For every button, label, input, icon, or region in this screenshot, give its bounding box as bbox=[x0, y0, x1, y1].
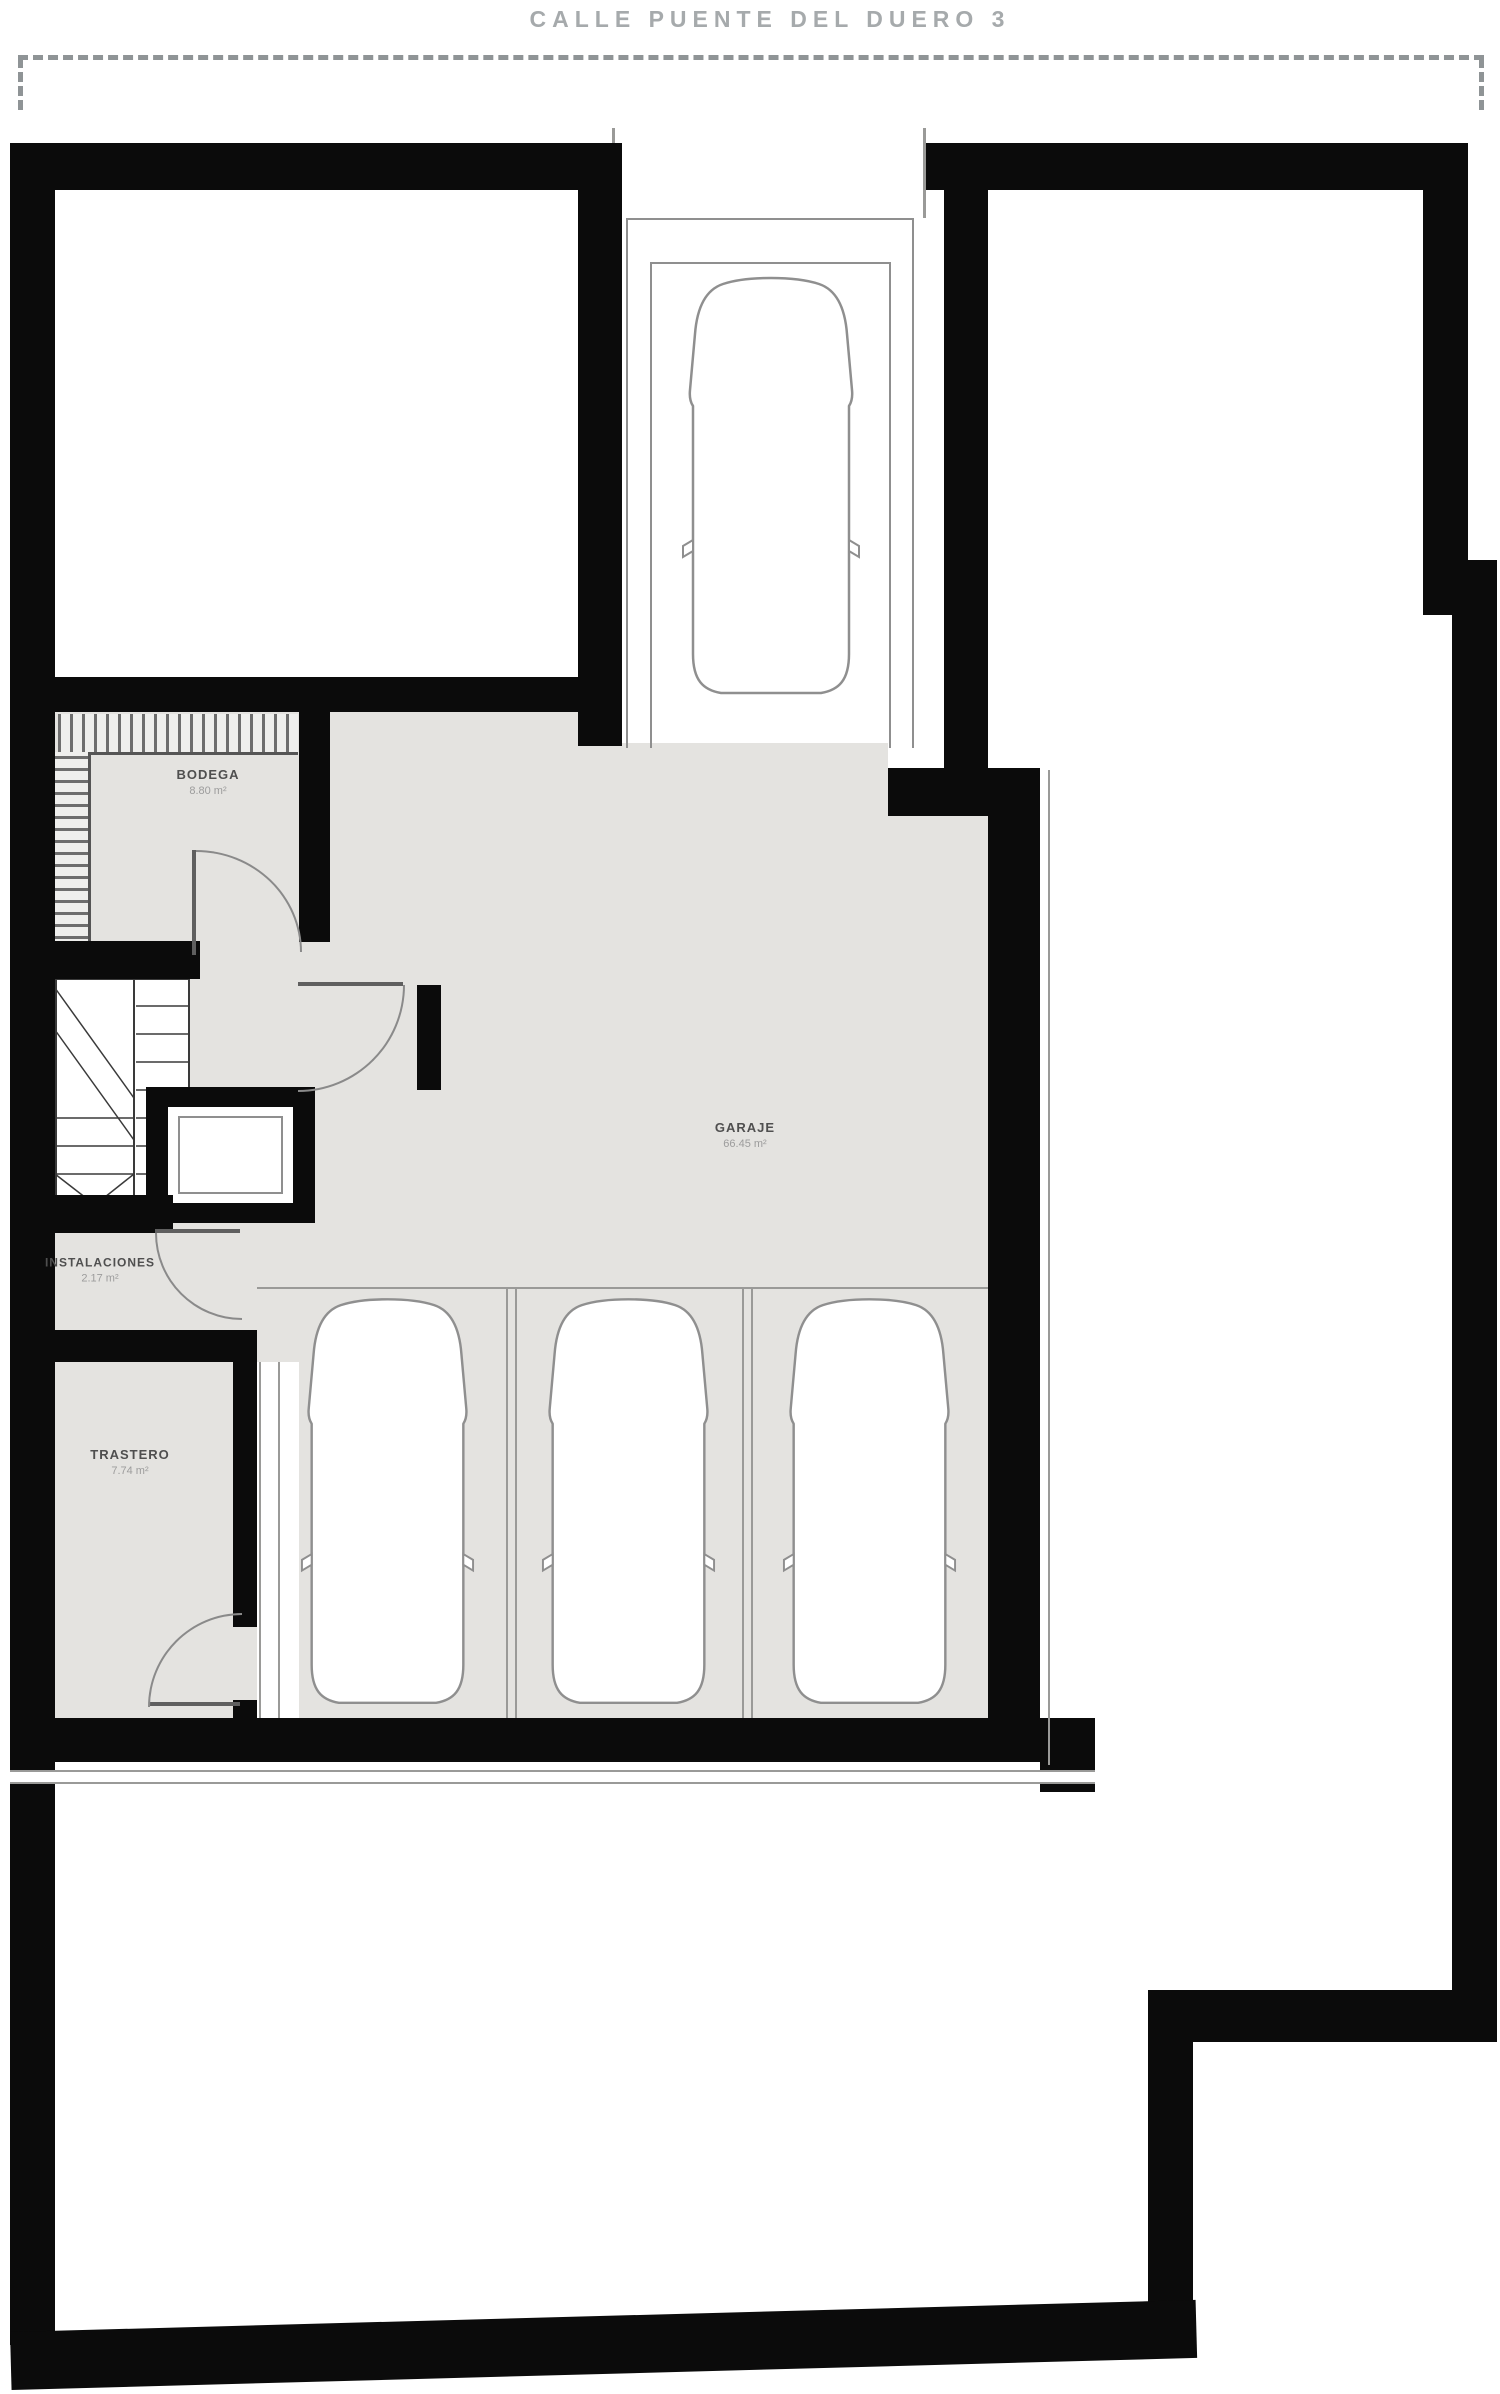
parking-bay-top-line bbox=[257, 1287, 988, 1289]
plot-boundary-dashed-line bbox=[18, 55, 1484, 60]
wall-ramp-right bbox=[944, 143, 988, 816]
wall-right-upper bbox=[1423, 143, 1468, 615]
wall-notch-vertical bbox=[1148, 1990, 1193, 2345]
car-on-ramp bbox=[680, 272, 862, 702]
bay-divider-1b bbox=[515, 1287, 517, 1718]
bay-divider-2b bbox=[751, 1287, 753, 1718]
wall-trastero-top bbox=[10, 1330, 257, 1362]
wall-bottom-slanted bbox=[10, 2300, 1197, 2390]
trastero-partition-line-a bbox=[259, 1362, 261, 1718]
plot-boundary-dash-right bbox=[1479, 58, 1484, 110]
street-title: CALLE PUENTE DEL DUERO 3 bbox=[530, 6, 1011, 33]
parked-car-1 bbox=[300, 1290, 475, 1715]
trastero-partition-line-b bbox=[278, 1362, 280, 1718]
wall-under-top-room bbox=[10, 677, 622, 712]
wall-garage-right bbox=[988, 768, 1040, 1718]
label-trastero-area: 7.74 m² bbox=[90, 1465, 170, 1477]
wall-instalaciones-top bbox=[10, 1195, 173, 1233]
wall-ramp-left bbox=[578, 143, 622, 746]
parked-car-2 bbox=[541, 1290, 716, 1715]
wall-bodega-garage bbox=[299, 712, 330, 942]
label-garaje-area: 66.45 m² bbox=[715, 1138, 775, 1150]
label-bodega-name: BODEGA bbox=[176, 767, 239, 782]
garage-street-opening bbox=[612, 128, 926, 218]
wall-trastero-right bbox=[233, 1362, 257, 1627]
elevator-cab bbox=[178, 1116, 283, 1194]
label-instalaciones-area: 2.17 m² bbox=[45, 1273, 155, 1285]
footprint-line-right-of-garage bbox=[1048, 770, 1050, 1765]
bay-divider-1a bbox=[506, 1287, 508, 1718]
wall-bottom-right-step bbox=[1148, 1990, 1497, 2042]
wall-top-right bbox=[926, 143, 1468, 190]
label-trastero: TRASTERO 7.74 m² bbox=[90, 1447, 170, 1477]
parked-car-3 bbox=[782, 1290, 957, 1715]
label-trastero-name: TRASTERO bbox=[90, 1447, 170, 1462]
wall-left bbox=[10, 143, 55, 2345]
plot-boundary-dash-left bbox=[18, 58, 23, 110]
wall-landing-stairs bbox=[10, 941, 200, 979]
wardrobe-hatch-top bbox=[58, 714, 298, 755]
label-bodega: BODEGA 8.80 m² bbox=[176, 767, 239, 797]
wall-top-left bbox=[10, 143, 612, 190]
footprint-line-below-garage bbox=[10, 1770, 1095, 1784]
label-bodega-area: 8.80 m² bbox=[176, 785, 239, 797]
label-garaje: GARAJE 66.45 m² bbox=[715, 1120, 775, 1150]
label-garaje-name: GARAJE bbox=[715, 1120, 775, 1135]
wall-garage-bottom bbox=[10, 1718, 1095, 1762]
floor-plan: CALLE PUENTE DEL DUERO 3 bbox=[0, 0, 1500, 2394]
wall-right-lower bbox=[1452, 560, 1497, 2042]
wall-door-stub bbox=[417, 985, 441, 1090]
bay-divider-2a bbox=[742, 1287, 744, 1718]
label-instalaciones: INSTALACIONES 2.17 m² bbox=[45, 1256, 155, 1285]
label-instalaciones-name: INSTALACIONES bbox=[45, 1256, 155, 1270]
